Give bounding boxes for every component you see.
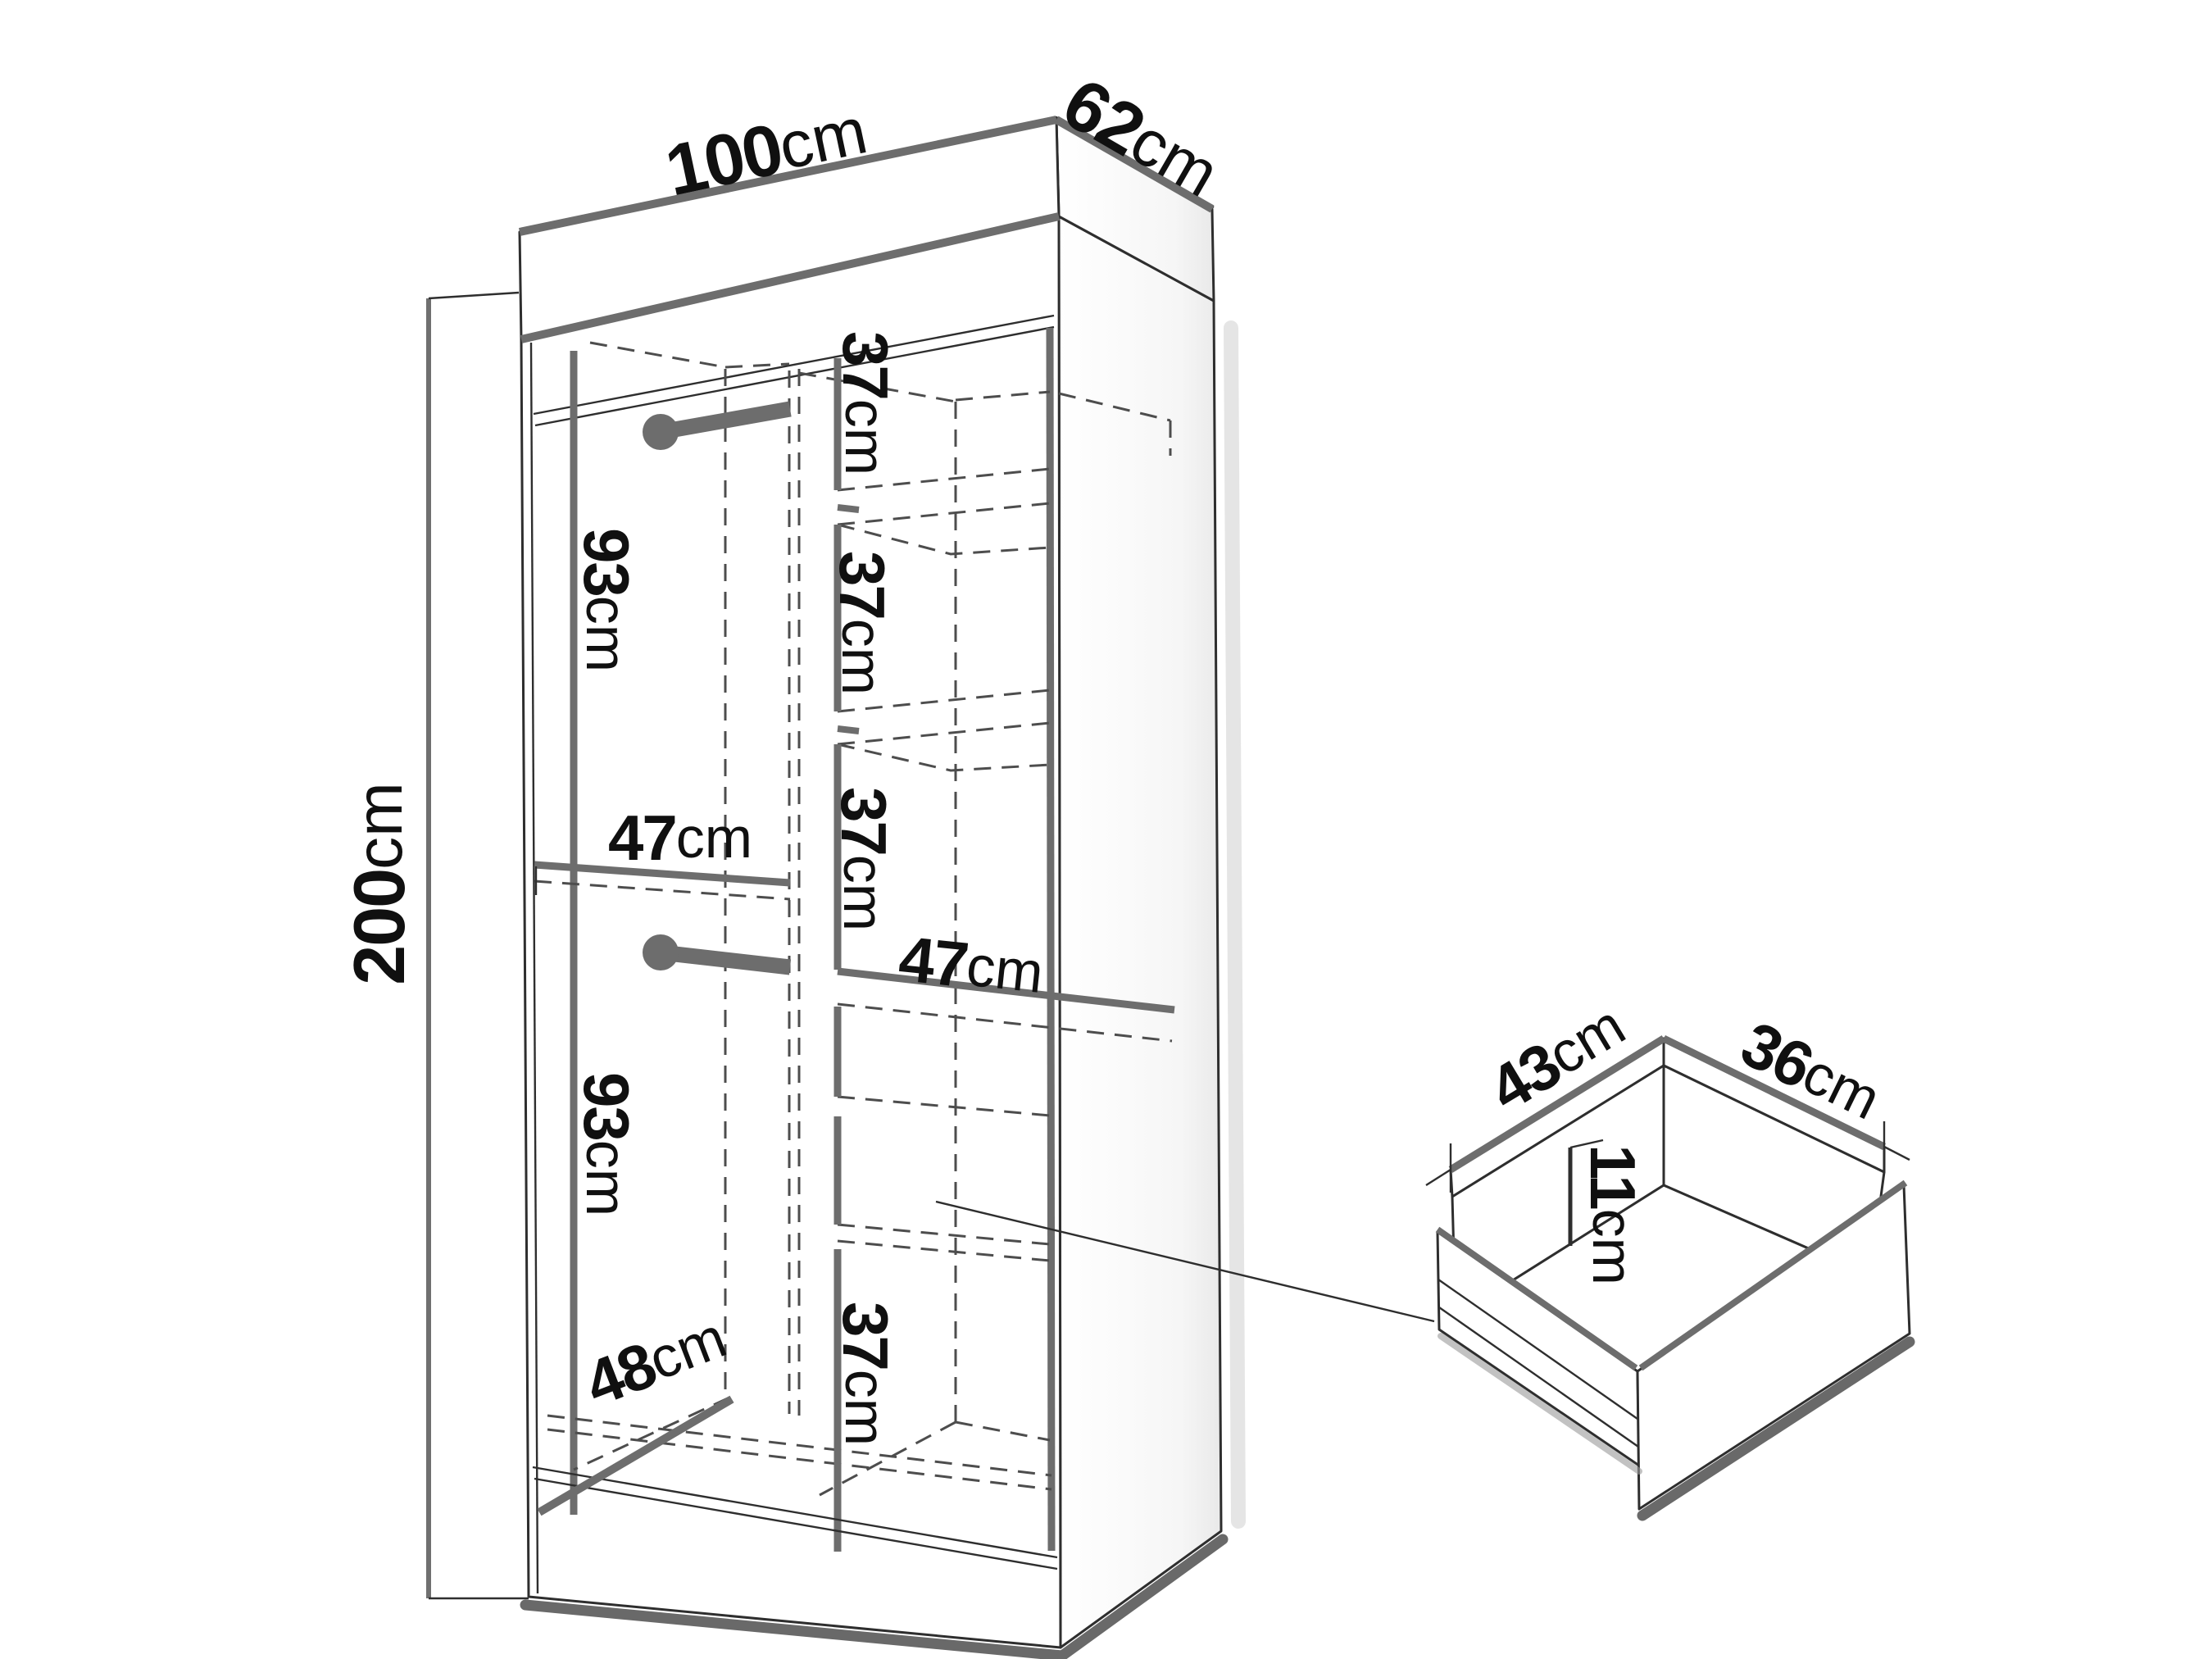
interior-right-panel (1050, 328, 1051, 1551)
wardrobe-dimension-diagram: 200cm (0, 0, 2212, 1659)
dim-hanging-bottom-label: 93cm (570, 1072, 643, 1216)
height-dimension: 200cm (338, 293, 529, 1598)
cabinet-front-face (521, 216, 1061, 1648)
cabinet-side-soft-shadow (1231, 328, 1238, 1521)
drawer-illustration: 43cm 36cm 11cm (1426, 989, 1910, 1516)
drawer-step-right (1884, 1147, 1910, 1160)
dim-drawer-height-label: 11cm (1577, 1144, 1649, 1285)
dim-shelf-gap-3-label: 37cm (828, 787, 900, 931)
dim-shelf-gap-2-label: 37cm (826, 551, 898, 695)
dim-left-shelf-width-label: 47cm (608, 802, 752, 874)
wardrobe-illustration: 100cm 62cm 37cm 37cm 37cm 37cm 93cm 93cm… (520, 61, 1238, 1656)
dim-shelf-gap-1-label: 37cm (829, 331, 902, 475)
shelf2-front-stub (838, 729, 859, 731)
cabinet-right-side-face (1059, 216, 1221, 1648)
shelf1-front-stub (838, 507, 859, 510)
diagram-canvas: 200cm (0, 0, 2212, 1659)
dim-height-label: 200cm (338, 782, 420, 984)
height-dimension-tick-top (429, 293, 519, 298)
drawer-ext-left-diag (1426, 1170, 1451, 1185)
dim-bottom-section-label: 37cm (829, 1302, 902, 1446)
dim-hanging-top-label: 93cm (570, 528, 643, 672)
